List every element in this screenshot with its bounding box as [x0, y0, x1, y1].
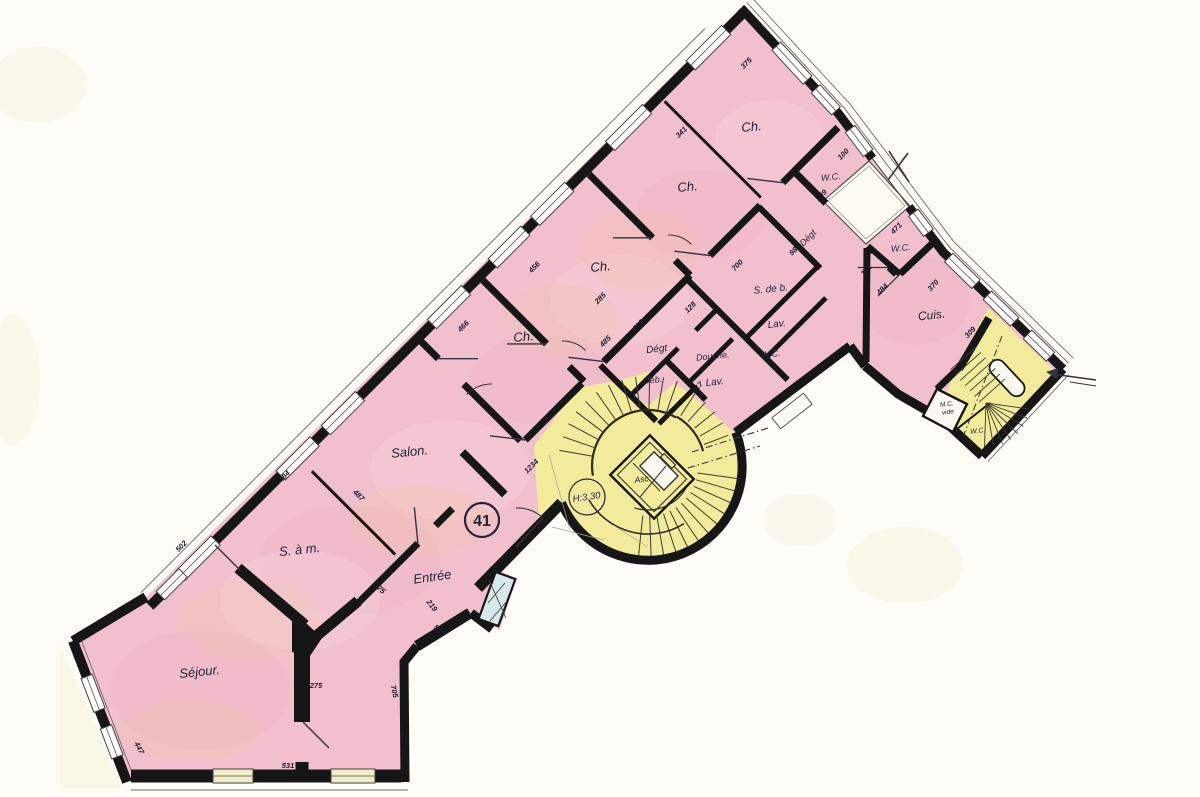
svg-text:Ch.: Ch.	[590, 258, 612, 275]
svg-text:M.C.: M.C.	[940, 400, 955, 408]
svg-text:Lav.: Lav.	[767, 318, 786, 331]
svg-text:531: 531	[282, 761, 295, 770]
svg-text:Déb.: Déb.	[643, 374, 663, 386]
svg-text:W.C.: W.C.	[820, 171, 841, 183]
svg-text:Cuis.: Cuis.	[917, 307, 946, 324]
svg-text:vide: vide	[942, 408, 955, 416]
svg-text:Ch.: Ch.	[741, 118, 763, 135]
svg-text:41: 41	[473, 513, 491, 530]
svg-text:Ch.: Ch.	[677, 178, 699, 195]
svg-text:Ch.: Ch.	[513, 328, 535, 345]
svg-text:W.C.: W.C.	[890, 242, 911, 254]
svg-text:Dégt: Dégt	[646, 343, 669, 356]
svg-text:Lav.: Lav.	[705, 376, 724, 389]
svg-text:W.C.: W.C.	[760, 348, 781, 360]
svg-text:275: 275	[309, 681, 323, 690]
